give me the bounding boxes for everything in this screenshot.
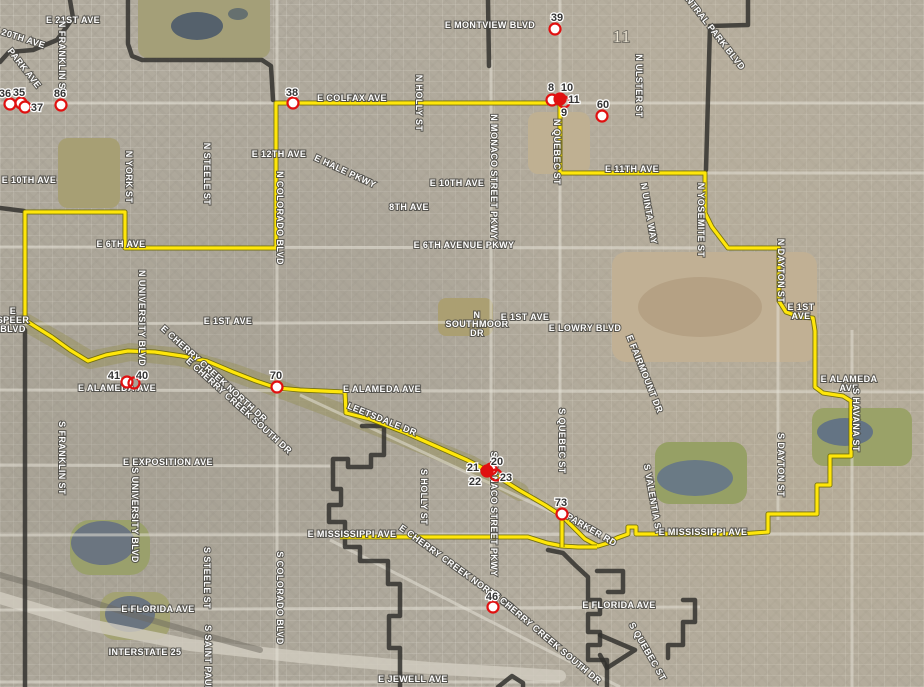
street-label: 8TH AVE [389, 202, 429, 212]
street-label: INTERSTATE 25 [109, 647, 182, 657]
street-label: E FLORIDA AVE [121, 604, 194, 614]
street-label: E LOWRY BLVD [549, 323, 622, 333]
south-boundary-triangle [600, 635, 635, 668]
marker-label-36: 36 [0, 88, 11, 100]
street-label: E 1ST AVE [204, 316, 253, 326]
marker-label-46: 46 [486, 591, 498, 603]
street-label: E 20TH AVE [0, 24, 46, 50]
boundary-n-stub [488, 0, 489, 66]
street-label: S FRANKLIN ST [57, 421, 67, 495]
street-label: N HOLLY ST [414, 75, 424, 132]
terrain-windsor-pond [817, 418, 873, 446]
marker-label-35: 35 [13, 87, 25, 99]
street-label: E 10TH AVE [430, 178, 485, 188]
marker-label-23: 23 [500, 472, 512, 484]
street-label: N UINTA WAY [639, 182, 660, 245]
marker-label-20: 20 [491, 456, 503, 468]
south-boundary-hook [668, 600, 695, 658]
street-label: N YORK ST [124, 151, 134, 204]
street-label: S DAYTON ST [776, 433, 786, 497]
map-marker-70[interactable] [272, 382, 283, 393]
terrain-cheesman-park [58, 138, 120, 208]
street-label: S QUEBEC ST [557, 408, 567, 474]
street-label: E HALE PKWY [313, 153, 378, 190]
terrain-pond-sw1 [71, 521, 135, 565]
marker-label-39: 39 [551, 12, 563, 24]
street-label: E MISSISSIPPI AVE [659, 527, 748, 537]
street-label: N ULSTER ST [634, 54, 644, 118]
terrain-city-park-pond [228, 8, 248, 20]
marker-label-22: 22 [469, 476, 481, 488]
terrain-city-park-lake [171, 12, 223, 40]
street-label: E JEWELL AVE [378, 674, 448, 684]
marker-label-11: 11 [568, 94, 580, 106]
street-label: E 6TH AVE [96, 239, 145, 249]
street-label: N DAYTON ST [776, 239, 786, 304]
street-label: E MISSISSIPPI AVE [308, 529, 397, 539]
street-label: S SAINT PAUL ST [203, 625, 213, 687]
marker-label-41: 41 [108, 370, 120, 382]
street-label: N STEELE ST [202, 143, 212, 206]
marker-label-70: 70 [270, 370, 282, 382]
street-label: E ALAMEDA AVE [78, 383, 156, 393]
marker-label-8: 8 [548, 82, 554, 94]
marker-label-86: 86 [54, 88, 66, 100]
map-viewport[interactable]: 11E 21ST AVEE 20TH AVEPARK AVEN FRANKLIN… [0, 0, 924, 687]
street-label: E 21ST AVE [46, 15, 100, 25]
street-label: S HOLLY ST [419, 469, 429, 525]
south-boundary-notch [597, 571, 623, 592]
street-label: S COLORADO BLVD [275, 551, 285, 644]
map-marker-36[interactable] [5, 99, 16, 110]
marker-label-73: 73 [555, 497, 567, 509]
map-marker-73[interactable] [557, 509, 568, 520]
street-label: E MONTVIEW BLVD [445, 20, 535, 30]
street-label: N UNIVERSITY BLVD [137, 270, 147, 366]
street-label: S UNIVERSITY BLVD [130, 467, 140, 563]
marker-label-40: 40 [136, 370, 148, 382]
street-label: E 12TH AVE [252, 149, 307, 159]
street-label: E 6TH AVENUE PKWY [414, 240, 515, 250]
marker-label-9: 9 [561, 107, 567, 119]
street-label: E ALAMEDA AVE [343, 384, 421, 394]
map-marker-86[interactable] [56, 100, 67, 111]
street-label: E 1ST AVE [501, 312, 550, 322]
map-marker-38[interactable] [288, 98, 299, 109]
street-label: N QUEBEC ST [552, 119, 562, 185]
map-marker-39[interactable] [550, 24, 561, 35]
map-marker-60[interactable] [597, 111, 608, 122]
street-label: N FRANKLIN ST [57, 21, 67, 95]
marker-label-60: 60 [597, 99, 609, 111]
marker-label-21: 21 [467, 462, 479, 474]
street-label: S STEELE ST [202, 547, 212, 609]
street-label: E EXPOSITION AVE [123, 457, 213, 467]
terrain-crestmoor-park [438, 298, 493, 336]
map-overlay: 11E 21ST AVEE 20TH AVEPARK AVEN FRANKLIN… [0, 0, 924, 687]
marker-label-38: 38 [286, 87, 298, 99]
marker-label-37: 37 [31, 102, 43, 114]
terrain-golf-pond [657, 460, 733, 496]
street-label: N COLORADO BLVD [275, 171, 285, 265]
map-marker-37[interactable] [20, 102, 31, 113]
street-label: S HAVANA ST [851, 388, 861, 452]
street-label: N YOSEMITE ST [696, 183, 706, 258]
street-label: E COLFAX AVE [317, 93, 387, 103]
street-label: E 10TH AVE [2, 175, 57, 185]
terrain-lowry-dirt [638, 277, 762, 337]
street-label: E ALAMEDAAVE [821, 374, 878, 393]
street-label: E 11TH AVE [605, 164, 659, 174]
marker-label-10: 10 [561, 82, 573, 94]
street-label: E FLORIDA AVE [582, 600, 655, 610]
street-label: N MONACO STREET PKWY [489, 114, 499, 240]
west-boundary-spur [0, 208, 24, 211]
basemap-label: 11 [613, 27, 631, 46]
map-marker-46[interactable] [488, 602, 499, 613]
